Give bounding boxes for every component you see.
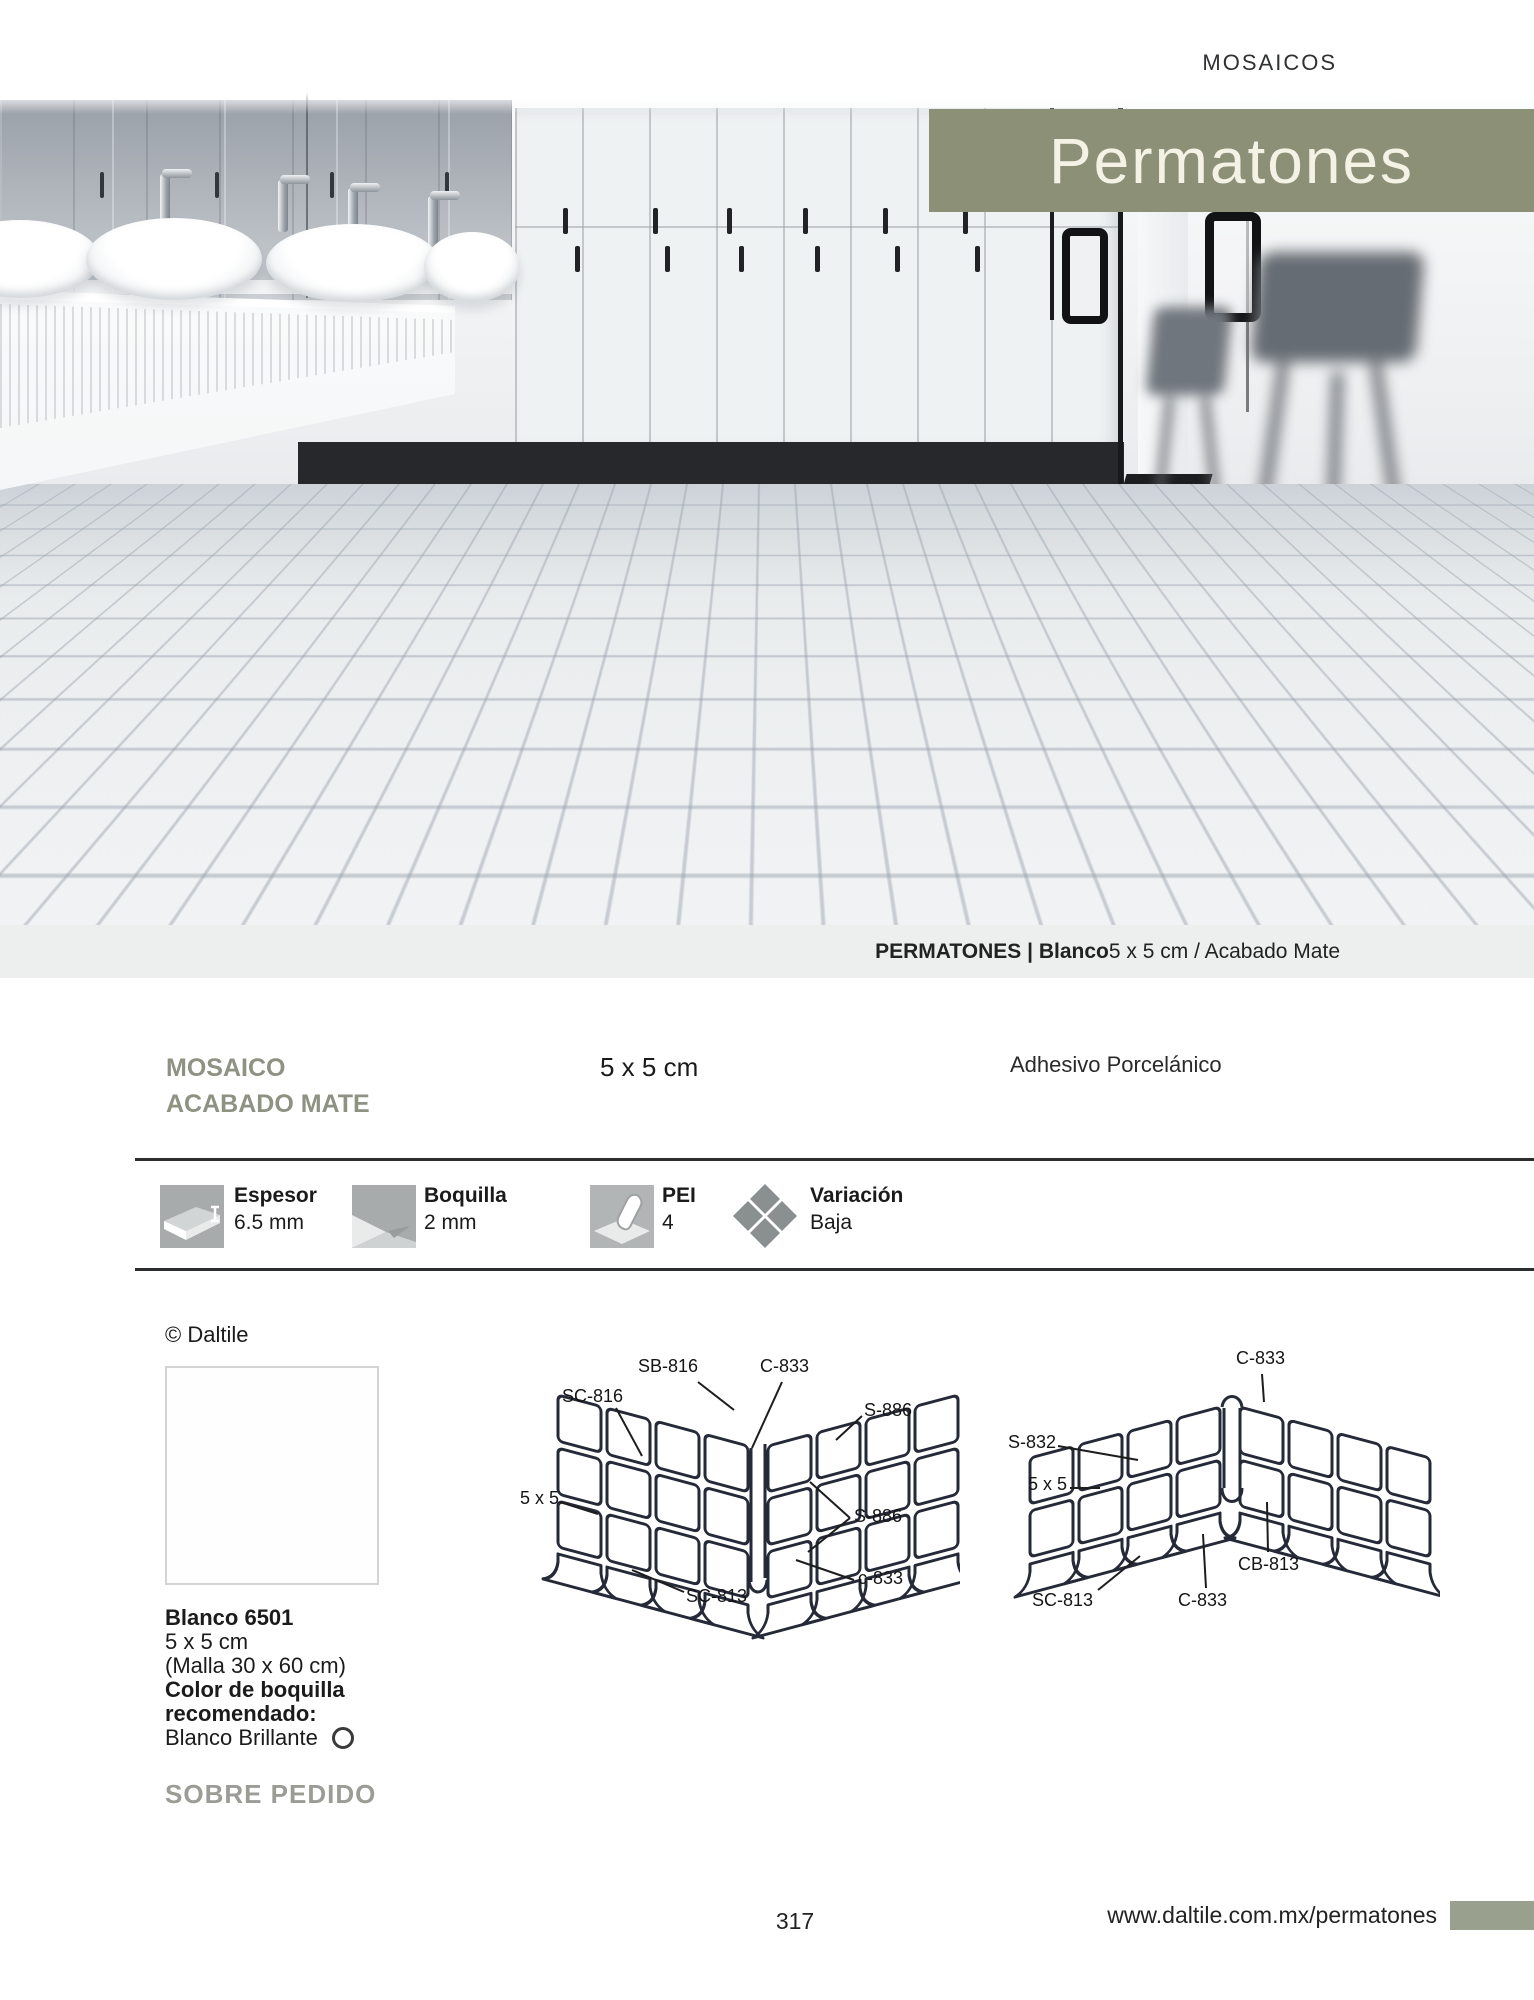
trim-code: S-886 bbox=[864, 1400, 912, 1421]
divider-rule-bottom bbox=[135, 1268, 1534, 1271]
cabinet-divider bbox=[515, 226, 1121, 228]
vessel-sink bbox=[86, 218, 262, 300]
trim-code: SC-813 bbox=[1032, 1590, 1093, 1611]
caption-detail: 5 x 5 cm / Acabado Mate bbox=[1109, 940, 1340, 964]
trim-code: C-833 bbox=[1236, 1348, 1285, 1369]
hero-photo: Permatones bbox=[0, 92, 1534, 925]
glass-door-handle bbox=[1062, 228, 1108, 324]
variacion-icon bbox=[732, 1183, 798, 1249]
footer-color-tab bbox=[1450, 1901, 1534, 1930]
baseboard bbox=[298, 442, 1124, 488]
cabinet-handle bbox=[739, 246, 744, 272]
product-info: Blanco 6501 5 x 5 cm (Malla 30 x 60 cm) … bbox=[165, 1606, 354, 1750]
cabinet-handle bbox=[575, 246, 580, 272]
copyright-note: © Daltile bbox=[165, 1322, 248, 1348]
grout-color-circle bbox=[332, 1727, 354, 1749]
trim-code: SB-816 bbox=[638, 1356, 698, 1377]
vessel-sink bbox=[266, 224, 440, 302]
pei-icon bbox=[590, 1185, 654, 1248]
trim-code: CB-813 bbox=[1238, 1554, 1299, 1575]
product-type-heading: MOSAICO ACABADO MATE bbox=[166, 1050, 370, 1122]
floor-horizon-fade bbox=[0, 484, 1534, 574]
cabinet-handle bbox=[653, 208, 658, 234]
trim-code: S-832 bbox=[1008, 1432, 1056, 1453]
outside-corner-line-art bbox=[1000, 1340, 1440, 1672]
page-number: 317 bbox=[755, 1908, 835, 1935]
divider-rule-top bbox=[135, 1158, 1534, 1161]
tile-size-label: 5 x 5 bbox=[1028, 1474, 1067, 1495]
availability-note: SOBRE PEDIDO bbox=[165, 1779, 376, 1810]
grout-label-2: recomendado: bbox=[165, 1702, 354, 1726]
faucet bbox=[428, 196, 438, 248]
cabinet-handle bbox=[975, 246, 980, 272]
product-mesh: (Malla 30 x 60 cm) bbox=[165, 1654, 354, 1678]
spec-label-espesor: Espesor bbox=[234, 1184, 317, 1208]
espesor-icon bbox=[160, 1185, 224, 1248]
cabinet-handle bbox=[665, 246, 670, 272]
heading-line-2: ACABADO MATE bbox=[166, 1086, 370, 1122]
section-label: MOSAICOS bbox=[1202, 50, 1337, 76]
adhesive-note: Adhesivo Porcelánico bbox=[1010, 1052, 1222, 1078]
series-title: Permatones bbox=[1049, 124, 1414, 198]
color-swatch-blanco bbox=[165, 1366, 379, 1585]
faucet bbox=[278, 180, 288, 232]
caption-product: PERMATONES | Blanco bbox=[875, 940, 1109, 964]
photo-caption: PERMATONES | Blanco 5 x 5 cm / Acabado M… bbox=[0, 925, 1534, 978]
trim-code: C-833 bbox=[1178, 1590, 1227, 1611]
grout-color-value: Blanco Brillante bbox=[165, 1726, 318, 1750]
vessel-sink bbox=[424, 232, 520, 302]
cabinet-handle bbox=[895, 246, 900, 272]
tile-size-label: 5 x 5 bbox=[520, 1488, 559, 1509]
format-size: 5 x 5 cm bbox=[600, 1052, 698, 1083]
catalog-page: MOSAICOS bbox=[0, 0, 1534, 2000]
boquilla-icon bbox=[352, 1185, 416, 1248]
product-name: Blanco 6501 bbox=[165, 1606, 354, 1630]
cabinet-handle bbox=[803, 208, 808, 234]
trim-code: C-833 bbox=[760, 1356, 809, 1377]
spec-value-pei: 4 bbox=[662, 1211, 674, 1235]
footer-url: www.daltile.com.mx/permatones bbox=[1107, 1902, 1437, 1929]
trim-diagram-inside-corner: SB-816 C-833 SC-816 S-886 5 x 5 S-886 c-… bbox=[520, 1340, 960, 1672]
spec-label-pei: PEI bbox=[662, 1184, 696, 1208]
trim-code: SC-813 bbox=[686, 1586, 747, 1607]
grout-label-1: Color de boquilla bbox=[165, 1678, 354, 1702]
reflected-handle bbox=[100, 172, 104, 198]
reflected-handle bbox=[330, 172, 334, 198]
reflected-handle bbox=[215, 172, 219, 198]
spec-label-boquilla: Boquilla bbox=[424, 1184, 507, 1208]
series-banner: Permatones bbox=[929, 109, 1534, 212]
spec-value-boquilla: 2 mm bbox=[424, 1211, 477, 1235]
cabinet-handle bbox=[563, 208, 568, 234]
cabinet-handle bbox=[883, 208, 888, 234]
trim-code: S-886 bbox=[854, 1506, 902, 1527]
trim-diagram-outside-corner: C-833 S-832 5 x 5 CB-813 SC-813 C-833 bbox=[1000, 1340, 1440, 1672]
cabinet-handle bbox=[727, 208, 732, 234]
product-size: 5 x 5 cm bbox=[165, 1630, 354, 1654]
spec-value-variacion: Baja bbox=[810, 1211, 852, 1235]
spec-label-variacion: Variación bbox=[810, 1184, 903, 1208]
spec-value-espesor: 6.5 mm bbox=[234, 1211, 304, 1235]
trim-code: SC-816 bbox=[562, 1386, 623, 1407]
cabinet-handle bbox=[815, 246, 820, 272]
heading-line-1: MOSAICO bbox=[166, 1050, 370, 1086]
trim-code: c-833 bbox=[858, 1568, 903, 1589]
